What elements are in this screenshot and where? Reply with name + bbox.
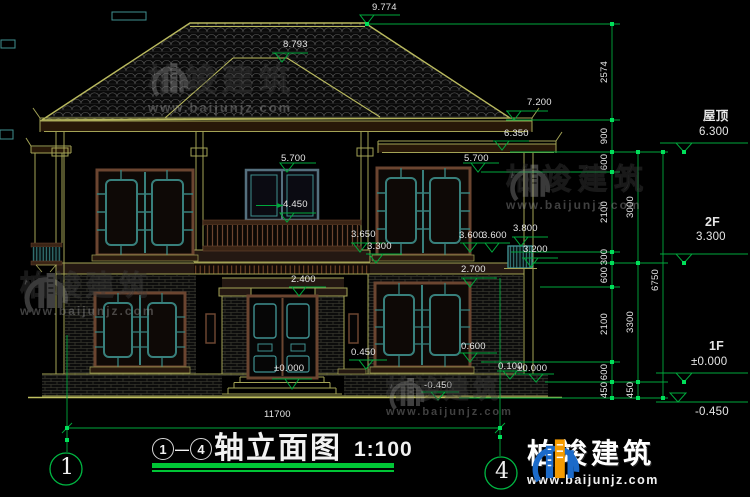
level-balcony-rail: 4.450 [283,200,308,210]
window-sill [90,367,190,373]
balcony-railing [203,220,361,251]
drawing-title: 1 — 4 轴立面图 1:100 [152,432,413,466]
story-level-1f: ±0.000 [691,356,727,369]
level-window-sill-2f: 3.600 [482,231,507,241]
axis-number-1: 1 [60,455,74,480]
title-separator: — [175,441,189,457]
cad-canvas: 9.7748.7937.2006.3505.7005.7004.4503.650… [0,0,750,497]
brand-logo: 柏竣建筑 www.baijunjz.com [527,432,659,487]
chimney-outline [112,12,146,20]
level-window-sill-2f: 3.600 [459,231,484,241]
level-window-sill-1f: 0.600 [461,342,486,352]
level-eave-wing: 6.350 [504,129,529,139]
window-sill [370,367,474,373]
title-scale: 1:100 [354,439,413,460]
level-grade: -0.450 [424,381,452,391]
chain-dim-label: 600 [600,154,610,170]
window-sill [92,255,198,261]
axis-number-4: 4 [495,459,509,484]
overall-width-dim: 11700 [264,410,291,420]
title-axis-start: 1 [152,438,174,460]
title-underline [152,463,394,468]
level-small-window-head: 3.800 [513,224,538,234]
story-label-2f: 2F [705,216,720,230]
level-door-head: 2.400 [291,275,316,285]
level-ridge-main: 9.774 [372,3,397,13]
chain-dim-label: 2574 [600,61,610,83]
level-ridge-front: 8.793 [283,40,308,50]
chain-dim-label: 3300 [626,311,636,333]
chain-dim-label: 600 [600,267,610,283]
level-porch-parapet: 3.650 [351,230,376,240]
chain-dim-label: 6750 [651,269,661,291]
level-ledge: 0.450 [351,348,376,358]
window-sill [372,255,474,261]
chain-dim-label: 450 [600,382,610,398]
title-axis-end: 4 [190,438,212,460]
story-level-grade: -0.450 [695,406,729,419]
level-window-head-2f: 5.700 [464,154,489,164]
chain-dim-label: 300 [600,249,610,265]
story-label-1f: 1F [709,340,724,354]
chain-dim-label: 900 [600,128,610,144]
level-window-head-1f: 2.700 [461,265,486,275]
slit-window-left [206,314,215,343]
level-eave-main: 7.200 [527,98,552,108]
level-window-head-2f: 5.700 [281,154,306,164]
chain-dim-label: 600 [600,364,610,380]
story-level-roof: 6.300 [699,126,729,139]
level-small-window-sill: 3.200 [523,245,548,255]
window-1f-right [370,283,474,373]
roof [0,12,510,139]
title-text: 轴立面图 [214,434,342,464]
level-ground-floor: ±0.000 [517,364,547,374]
story-label-roof: 屋顶 [703,110,728,124]
brand-logo-icon [527,432,581,490]
level-2f-floor: 3.300 [367,242,392,252]
chain-dim-label: 2100 [600,313,610,335]
slit-window-right [349,314,358,343]
window-2f-left [92,170,198,261]
level-entry-floor: ±0.000 [274,364,304,374]
title-underline-thin [152,470,394,472]
chain-dim-label: 450 [626,382,636,398]
story-level-2f: 3.300 [696,231,726,244]
chain-dim-label: 3000 [626,196,636,218]
chain-dim-label: 2100 [600,201,610,223]
window-1f-left [90,293,190,373]
